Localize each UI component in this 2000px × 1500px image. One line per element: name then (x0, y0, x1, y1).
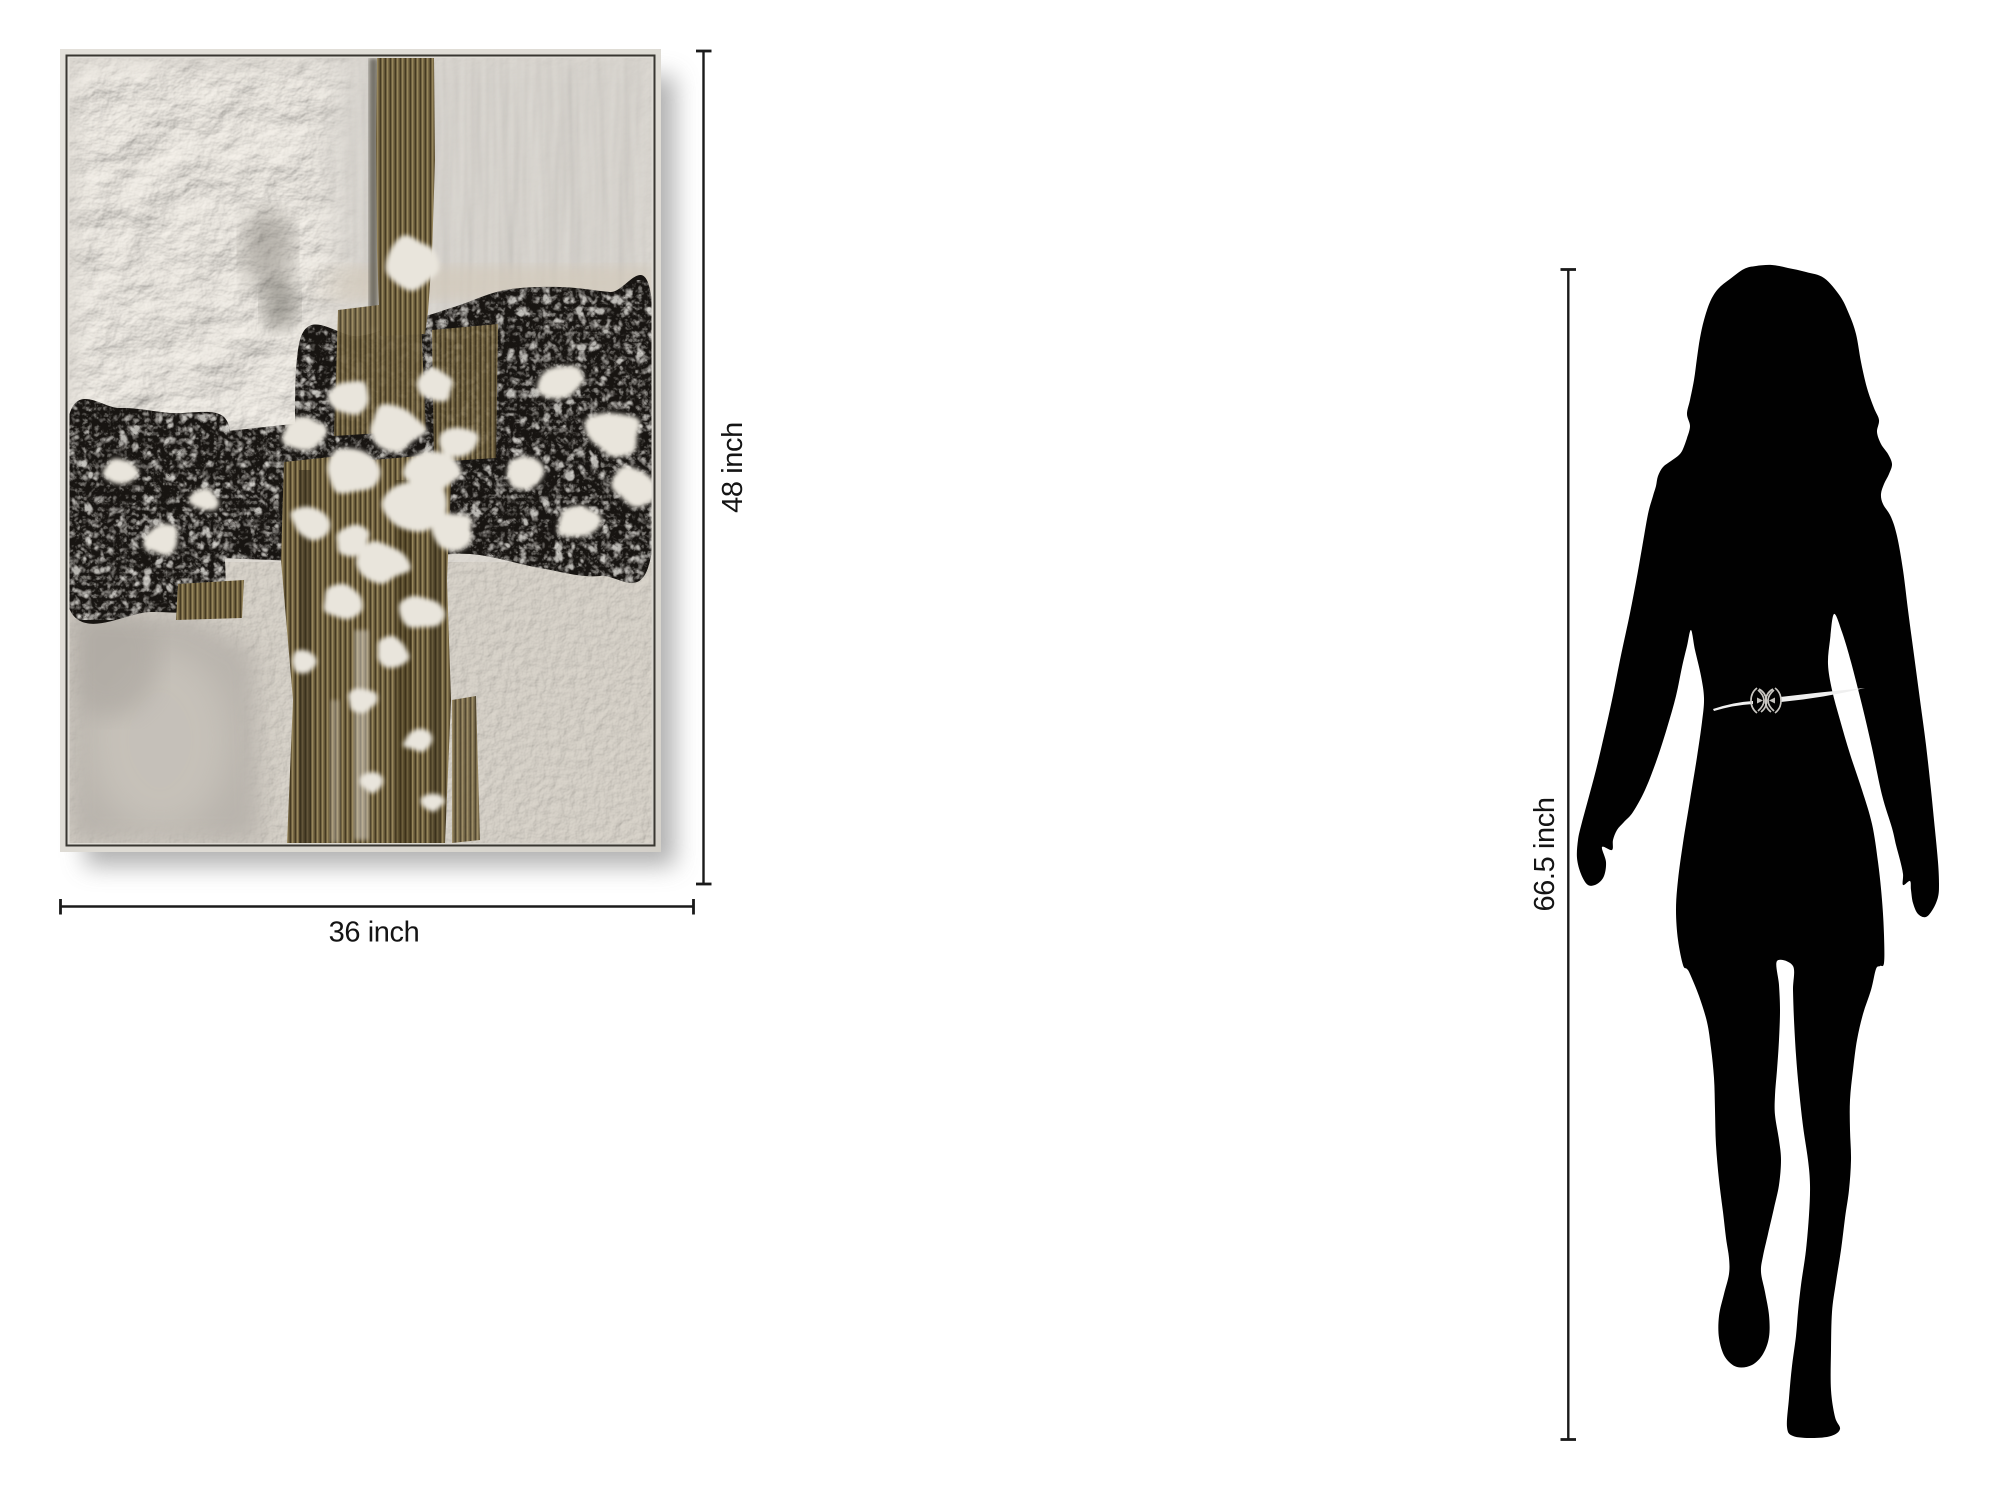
svg-text:36 inch: 36 inch (329, 917, 420, 949)
svg-text:66.5 inch: 66.5 inch (1529, 797, 1561, 911)
svg-text:48 inch: 48 inch (717, 422, 749, 513)
